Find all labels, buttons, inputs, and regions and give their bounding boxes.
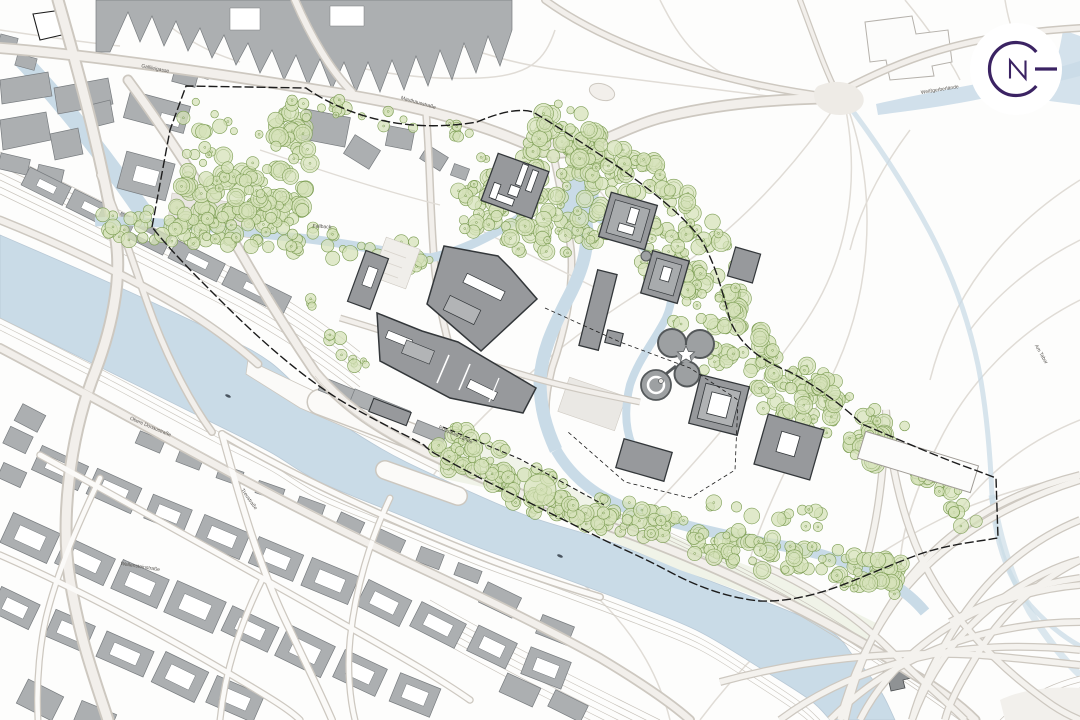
svg-text:Fallbach: Fallbach <box>312 224 331 231</box>
